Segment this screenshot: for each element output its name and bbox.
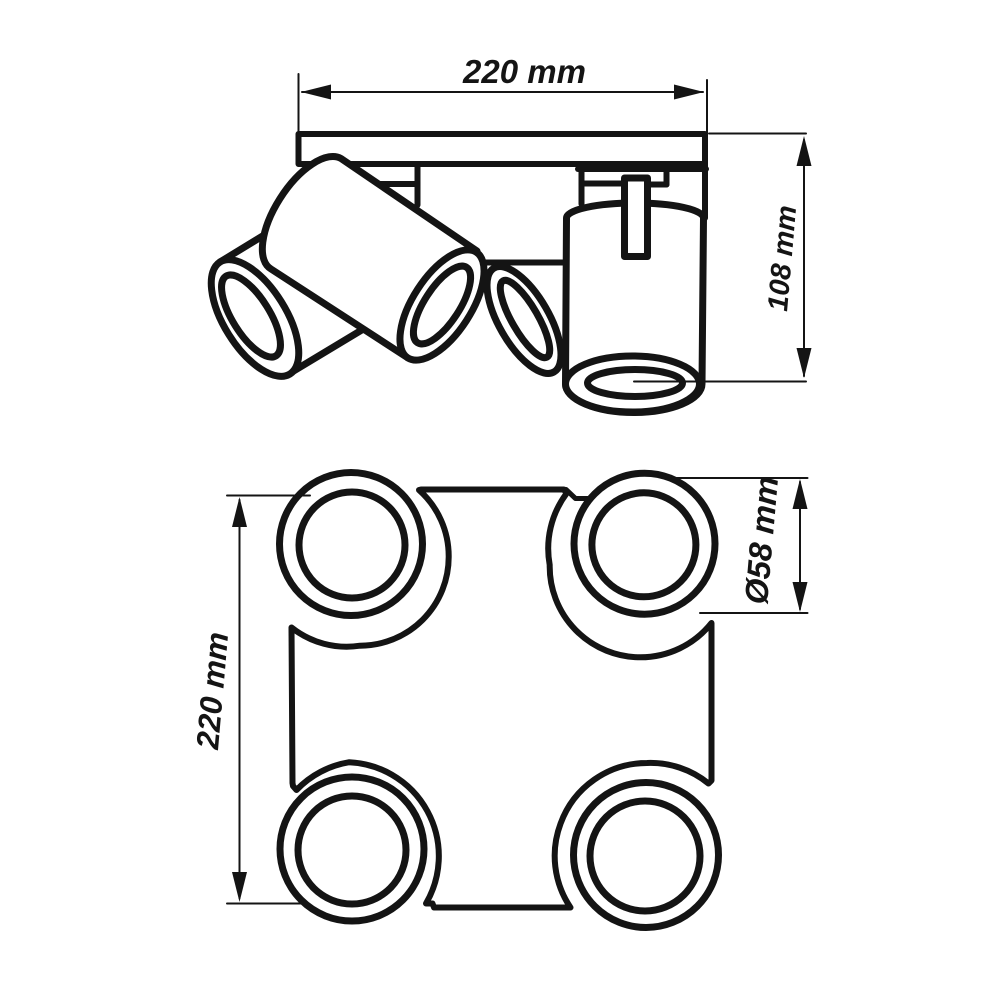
- svg-text:220 mm: 220 mm: [462, 53, 586, 90]
